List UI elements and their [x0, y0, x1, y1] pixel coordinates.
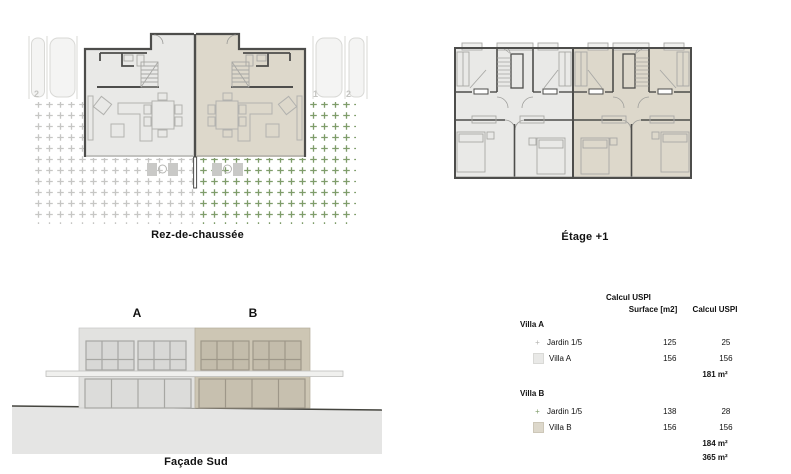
row-villa-a-jardin: Jardin 1/5 125 25 — [502, 338, 754, 347]
col-uspi-header: Calcul USPI — [684, 305, 746, 314]
row-label: Villa A — [549, 354, 571, 363]
villa-b-section-header: Villa B — [502, 389, 754, 398]
garden-green-swatch — [533, 407, 542, 416]
row-label: Jardin 1/5 — [547, 407, 582, 416]
facade-lower-glazing-a — [85, 379, 191, 408]
parking-number-right-2: 2 — [346, 89, 351, 99]
grand-total: 365 m² — [684, 453, 746, 462]
col-surface-header: Surface [m2] — [622, 305, 684, 314]
row-label: Jardin 1/5 — [547, 338, 582, 347]
ground-floor-plan: 2 1 2 — [29, 34, 367, 224]
uspi-value: 156 — [698, 354, 754, 363]
uspi-table-header: Surface [m2] Calcul USPI — [502, 305, 754, 314]
villa-a-section-header: Villa A — [502, 320, 754, 329]
villa-a-swatch — [533, 353, 544, 364]
row-label: Villa B — [549, 423, 572, 432]
villa-a-total-row: 181 m² — [502, 370, 754, 379]
surface-value: 156 — [642, 423, 698, 432]
uspi-value: 25 — [698, 338, 754, 347]
villa-b-swatch — [533, 422, 544, 433]
floor1-plan — [455, 43, 691, 178]
villa-b-total: 184 m² — [684, 439, 746, 448]
facade-caption: Façade Sud — [136, 456, 256, 468]
uspi-value: 28 — [698, 407, 754, 416]
facade-slab — [46, 371, 343, 377]
row-villa-a-villa: Villa A 156 156 — [502, 354, 754, 363]
facade-lower-glazing-b — [199, 379, 305, 408]
garden-gray-swatch — [533, 338, 542, 347]
parking-number-right-1: 1 — [313, 89, 318, 99]
architectural-sheet: 2 1 2 — [0, 0, 791, 474]
uspi-table-title: Calcul USPI — [502, 293, 754, 302]
uspi-table: Calcul USPI Surface [m2] Calcul USPI Vil… — [502, 293, 754, 462]
floor1-caption: Étage +1 — [535, 231, 635, 243]
surface-value: 138 — [642, 407, 698, 416]
uspi-value: 156 — [698, 423, 754, 432]
grand-total-row: 365 m² — [502, 453, 754, 462]
surface-value: 125 — [642, 338, 698, 347]
villa-b-total-row: 184 m² — [502, 439, 754, 448]
facade-label-villa-a: A — [117, 306, 157, 320]
parking-right — [313, 36, 367, 99]
villa-a-total: 181 m² — [684, 370, 746, 379]
facade-label-villa-b: B — [233, 306, 273, 320]
surface-value: 156 — [642, 354, 698, 363]
row-villa-b-jardin: Jardin 1/5 138 28 — [502, 407, 754, 416]
facade-ground — [12, 406, 382, 454]
ground-floor-caption: Rez-de-chaussée — [115, 229, 280, 241]
garden-divider-fence — [194, 157, 197, 188]
parking-number-left: 2 — [34, 89, 39, 99]
row-villa-b-villa: Villa B 156 156 — [502, 423, 754, 432]
facade-drawing — [12, 328, 382, 454]
